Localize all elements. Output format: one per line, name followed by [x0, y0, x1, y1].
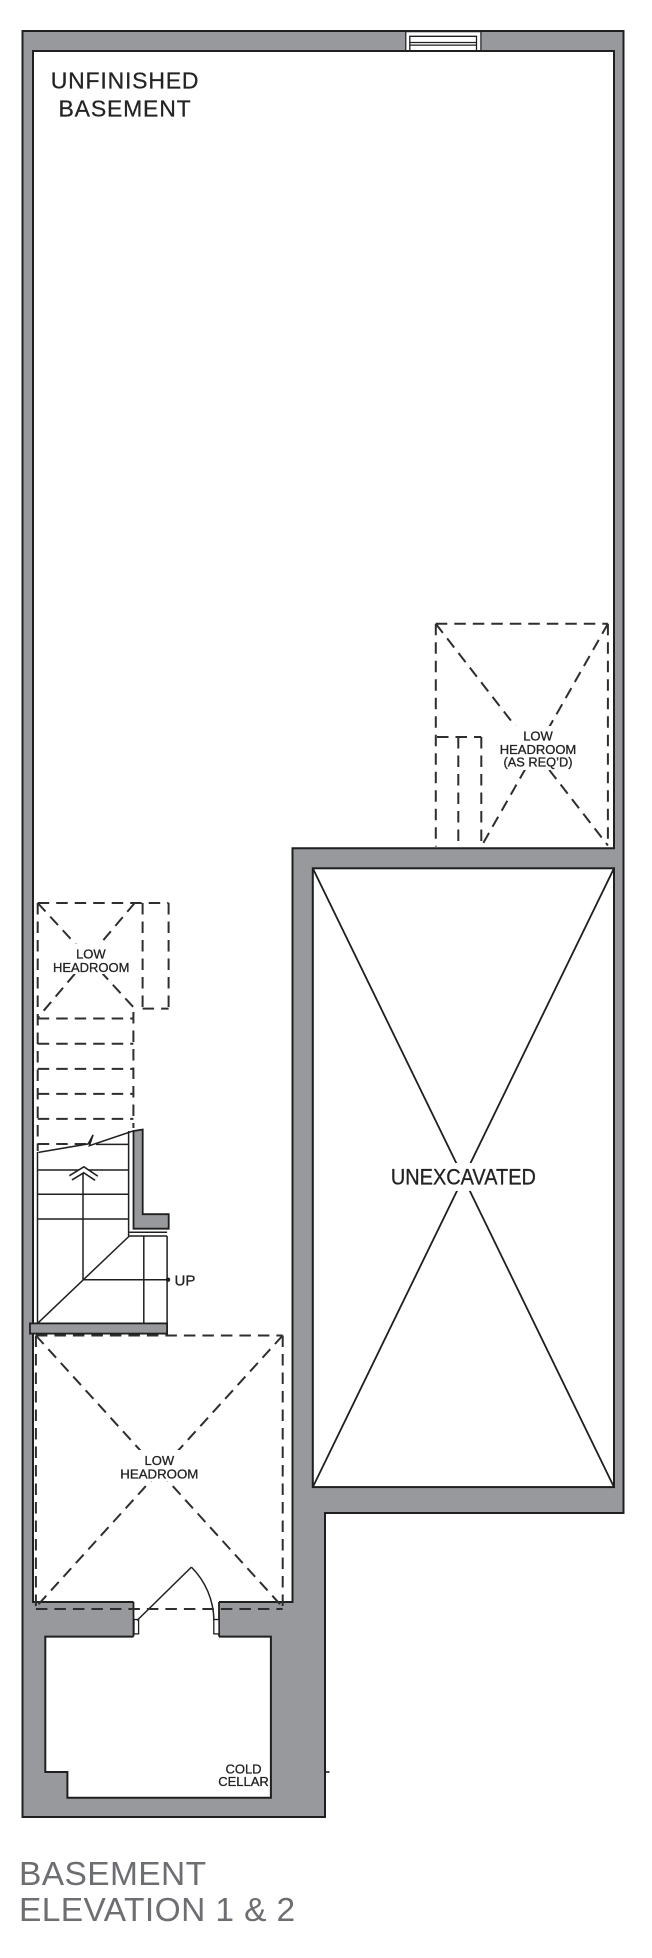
svg-text:HEADROOM: HEADROOM	[53, 960, 130, 975]
svg-text:UNFINISHED: UNFINISHED	[51, 68, 200, 94]
svg-text:UNEXCAVATED: UNEXCAVATED	[391, 1165, 536, 1190]
svg-text:ELEVATION 1 & 2: ELEVATION 1 & 2	[19, 1892, 296, 1929]
svg-text:BASEMENT: BASEMENT	[19, 1856, 206, 1893]
svg-text:UP: UP	[175, 1272, 196, 1289]
svg-text:BASEMENT: BASEMENT	[59, 96, 192, 122]
svg-text:CELLAR: CELLAR	[218, 1774, 269, 1789]
svg-text:HEADROOM: HEADROOM	[120, 1467, 198, 1482]
svg-text:(AS REQ’D): (AS REQ’D)	[504, 755, 573, 770]
